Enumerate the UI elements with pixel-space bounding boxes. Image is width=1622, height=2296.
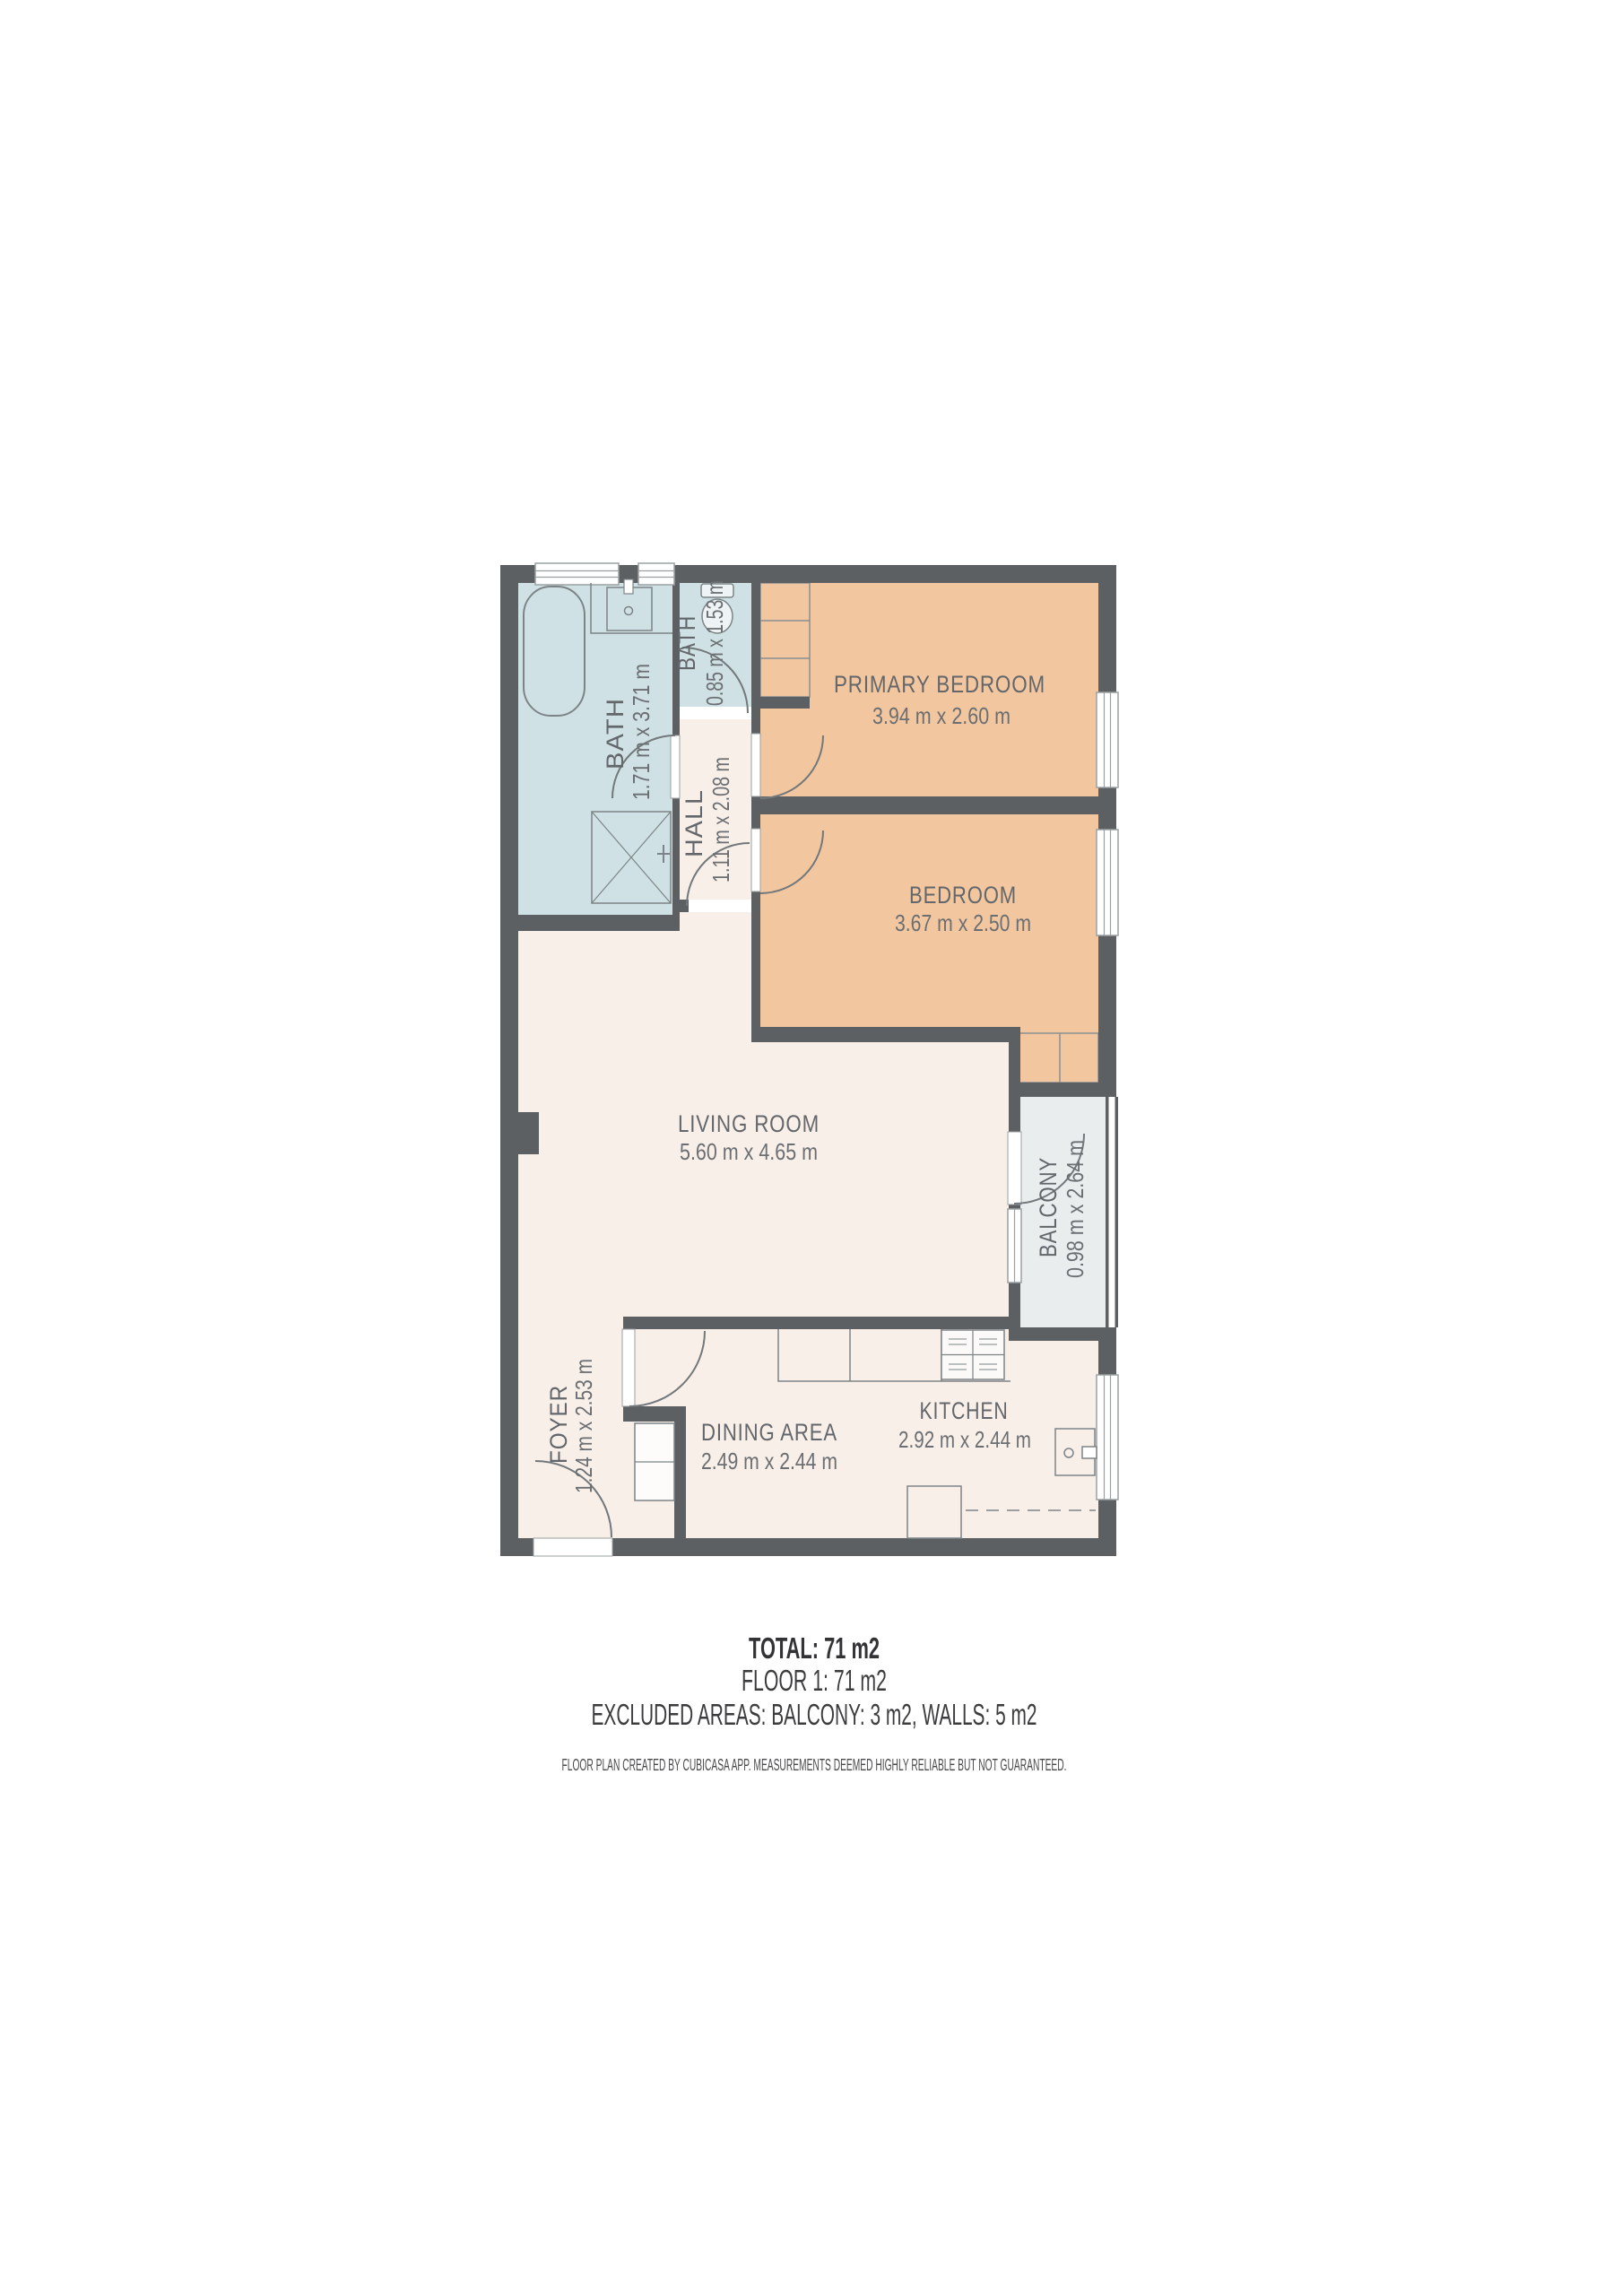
wall-bath-bottom (500, 915, 680, 931)
summary-disclaimer: FLOOR PLAN CREATED BY CUBICASA APP. MEAS… (562, 1756, 1067, 1774)
room-label-bath-small: BATH (673, 615, 700, 671)
floor-plan-page: PRIMARY BEDROOM 3.94 m x 2.60 m BEDROOM … (0, 0, 1622, 2296)
summary-block: TOTAL: 71 m2 FLOOR 1: 71 m2 EXCLUDED ARE… (562, 1631, 1067, 1774)
room-dims-bath-large: 1.71 m x 3.71 m (628, 664, 655, 800)
window (638, 563, 674, 585)
window (1008, 1209, 1021, 1283)
foyer-closet-icon (635, 1423, 674, 1500)
balcony-railing (1106, 1097, 1118, 1327)
door-leaf (671, 735, 680, 798)
wall-bedroom-divider (760, 796, 1116, 814)
door-opening (689, 900, 751, 912)
wall-balcony-bottom (1009, 1327, 1116, 1341)
room-dims-kitchen: 2.92 m x 2.44 m (898, 1426, 1031, 1453)
room-dims-foyer: 1.24 m x 2.53 m (570, 1359, 597, 1493)
room-dims-living-room: 5.60 m x 4.65 m (680, 1138, 818, 1165)
door-leaf (1008, 1132, 1021, 1205)
summary-floor: FLOOR 1: 71 m2 (742, 1664, 887, 1697)
room-label-bath-large: BATH (602, 698, 629, 770)
room-bedroom-closet-floor (1016, 1027, 1098, 1083)
door-leaf (622, 1329, 635, 1406)
door-leaf (751, 829, 760, 891)
door-leaf (751, 734, 760, 796)
window (535, 563, 619, 585)
wall-living-dining (623, 1317, 1010, 1329)
entrance-door-opening (533, 1538, 612, 1556)
room-label-balcony: BALCONY (1035, 1157, 1062, 1257)
room-label-bedroom: BEDROOM (909, 882, 1017, 909)
railing-line (1115, 1097, 1119, 1327)
window (1097, 1375, 1118, 1500)
room-label-primary-bedroom: PRIMARY BEDROOM (834, 671, 1045, 698)
summary-total: TOTAL: 71 m2 (749, 1631, 880, 1665)
wall-balcony-top (1009, 1083, 1116, 1097)
railing-line (1106, 1097, 1109, 1327)
wall-foyer-stub (623, 1406, 686, 1422)
stove-icon (941, 1330, 1004, 1379)
room-dims-bedroom: 3.67 m x 2.50 m (895, 909, 1031, 936)
room-label-living-room: LIVING ROOM (678, 1110, 820, 1137)
wall-bedroom-bottom (751, 1027, 1016, 1042)
room-dims-bath-small: 0.85 m x 1.53 m (701, 580, 728, 706)
wall-foyer-closet (674, 1422, 686, 1538)
room-dims-primary-bedroom: 3.94 m x 2.60 m (872, 702, 1010, 729)
wall-pillar (518, 1112, 539, 1154)
room-label-kitchen: KITCHEN (920, 1397, 1009, 1424)
room-label-hall: HALL (681, 789, 707, 857)
room-label-dining-area: DINING AREA (701, 1419, 837, 1446)
wall-closet-stub (760, 697, 810, 709)
wall-left (500, 565, 518, 1556)
summary-excluded-areas: EXCLUDED AREAS: BALCONY: 3 m2, WALLS: 5 … (592, 1698, 1037, 1731)
faucet-icon (624, 579, 633, 594)
room-dims-hall: 1.11 m x 2.08 m (707, 757, 734, 883)
room-dims-balcony: 0.98 m x 2.64 m (1062, 1140, 1089, 1278)
floor-plan-canvas: PRIMARY BEDROOM 3.94 m x 2.60 m BEDROOM … (0, 0, 1622, 2296)
door-opening (680, 707, 751, 719)
wall-hall-bedrooms (751, 583, 760, 1042)
room-label-foyer: FOYER (545, 1385, 572, 1464)
window (1097, 692, 1118, 787)
window (1097, 830, 1118, 935)
room-dims-dining-area: 2.49 m x 2.44 m (701, 1448, 837, 1474)
